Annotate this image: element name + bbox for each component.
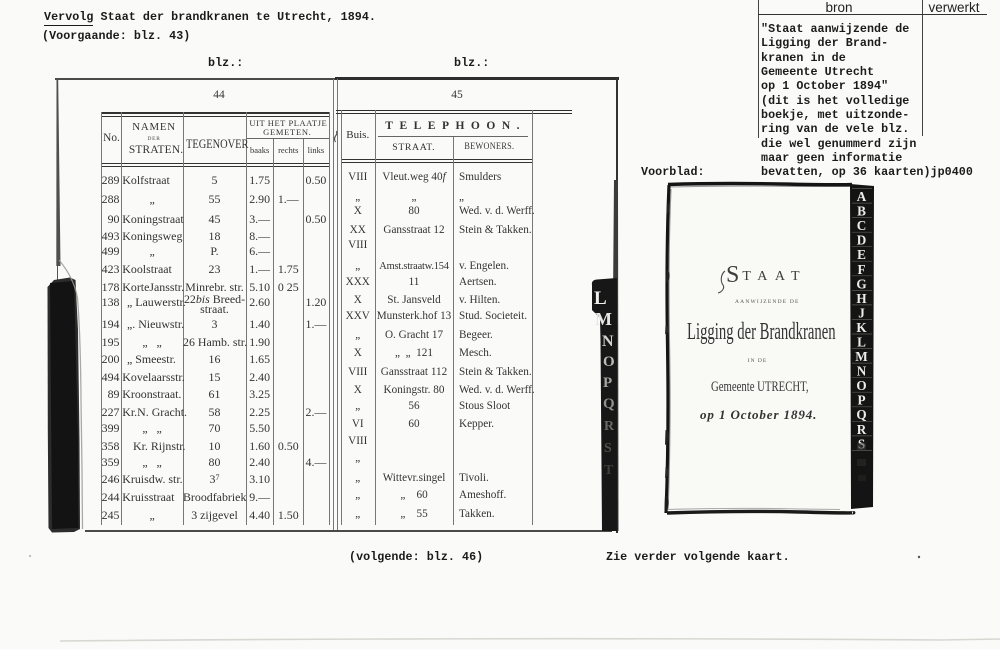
svg-text:B: B (857, 204, 866, 219)
svg-text:J: J (858, 305, 865, 320)
svg-text:A: A (857, 189, 867, 204)
svg-text:Q: Q (856, 407, 866, 422)
svg-text:P: P (857, 393, 865, 408)
svg-text:N: N (602, 333, 614, 350)
svg-text:H: H (856, 291, 867, 306)
svg-text:K: K (856, 320, 867, 335)
svg-text:S: S (604, 441, 612, 456)
svg-text:R: R (604, 419, 615, 434)
svg-text:O: O (603, 354, 615, 370)
svg-text:N: N (857, 364, 867, 379)
svg-text:G: G (856, 276, 866, 291)
svg-text:F: F (857, 262, 865, 277)
svg-text:E: E (857, 247, 866, 262)
svg-text:L: L (594, 288, 607, 309)
svg-text:O: O (856, 378, 866, 393)
svg-text:P: P (603, 375, 612, 391)
svg-text:D: D (857, 233, 867, 248)
svg-text:R: R (857, 422, 867, 437)
svg-text:M: M (595, 309, 612, 329)
svg-text:L: L (857, 335, 866, 350)
svg-text:Q: Q (603, 396, 615, 412)
svg-text:M: M (855, 349, 868, 364)
svg-text:T: T (604, 463, 614, 478)
svg-text:C: C (857, 218, 867, 233)
